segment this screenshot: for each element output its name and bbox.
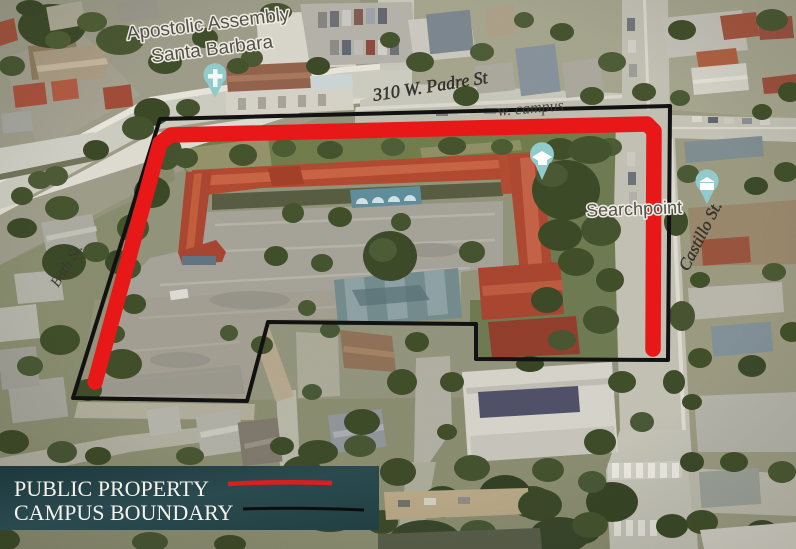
svg-text:PUBLIC PROPERTY: PUBLIC PROPERTY bbox=[14, 476, 209, 501]
svg-text:CAMPUS BOUNDARY: CAMPUS BOUNDARY bbox=[14, 500, 234, 525]
